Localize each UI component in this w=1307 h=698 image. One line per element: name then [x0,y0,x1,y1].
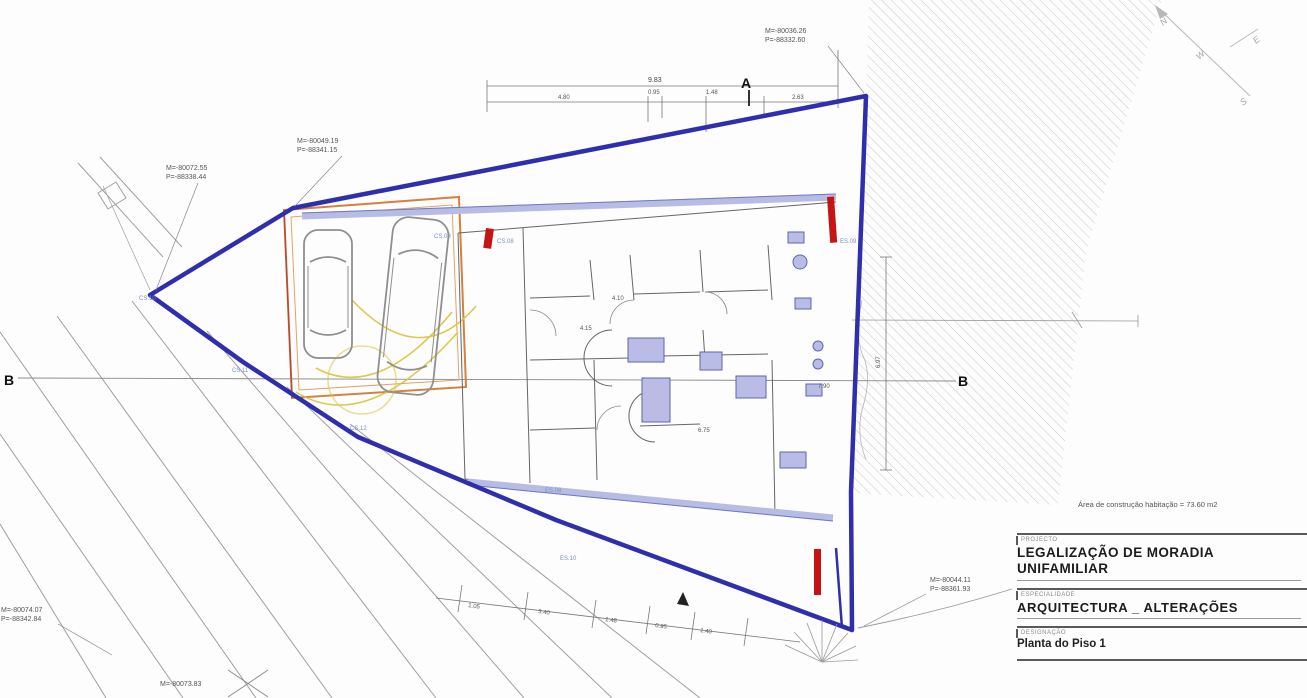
compass-w: W [1194,47,1208,61]
dimension-chain-top [487,50,838,132]
level-label: CS.12 [350,426,367,432]
level-label: CS.10 [139,296,156,302]
title-underline [1017,580,1301,581]
title-block-caption-drawing: DESIGNAÇÃO [1021,630,1307,636]
coord-bottom-center-m: M=-80073.83 [160,681,202,688]
title-block-divider [1017,626,1307,628]
hatched-area [851,0,1162,505]
compass-s: S [1238,96,1249,108]
coord-bottom-left-p: P=-88342.84 [1,616,41,623]
dim-seg-4: 2.63 [792,95,804,101]
room-dim-label: 4.15 [580,326,592,332]
coord-top-right-p: P=-88332.60 [765,37,805,44]
title-block-divider [1017,533,1307,535]
car-1 [304,230,352,358]
title-underline [1017,618,1301,619]
level-label: ES.09 [840,239,857,245]
plan-canvas: N E S W 9.83 4.80 0.95 1.48 2.63 6.97 [0,0,1307,698]
room-dim-label: 4.10 [612,296,624,302]
dim-b3: 1.48 [605,617,618,625]
coord-left-m: M=-80072.55 [166,165,208,172]
dim-overall: 9.83 [648,77,662,84]
dim-seg-3: 1.48 [706,90,718,96]
room-dim-label: 7.90 [818,384,830,390]
coord-bottom-right-p: P=-88361.93 [930,586,970,593]
dim-right: 6.97 [876,356,882,368]
compass-e: E [1251,33,1263,45]
room-dim-label: 6.75 [698,428,710,434]
site-boundary [150,96,866,630]
coord-top-right-m: M=-80036.26 [765,28,807,35]
coord-left-p: P=-88338.44 [166,174,206,181]
car-2 [376,216,450,397]
title-block-caption-speciality: ESPECIALIDADE [1021,592,1307,598]
dimension-chain-bottom [436,585,800,646]
level-label: CS.08 [497,239,514,245]
dim-seg-1: 4.80 [558,95,570,101]
garage-outline [284,197,466,398]
survey-cross-icon [228,670,268,697]
dim-seg-2: 0.95 [648,90,660,96]
coord-leaders [58,46,926,655]
section-marker-b-left: B [4,372,14,388]
dim-b5: 1.40 [700,628,713,636]
project-title: LEGALIZAÇÃO DE MORADIA UNIFAMILIAR [1017,545,1307,577]
dim-b2: 3.40 [538,609,551,617]
level-label: ES.08 [545,488,562,494]
level-label: CS.11 [232,368,249,374]
speciality-title: ARQUITECTURA _ ALTERAÇÕES [1017,600,1307,615]
title-block-caption-project: PROJECTO [1021,537,1307,543]
dim-b4: 0.95 [655,623,668,631]
spacer [1017,650,1307,659]
coord-top-mid-m: M=-80049.19 [297,138,339,145]
coord-top-mid-p: P=-88341.15 [297,147,337,154]
title-block-divider [1017,659,1307,661]
coord-bottom-left-m: M=-80074.07 [1,607,43,614]
section-marker-b-right: B [958,373,968,389]
wall-bands [302,194,836,521]
boundary-inner-segment [836,548,842,628]
title-block: PROJECTO LEGALIZAÇÃO DE MORADIA UNIFAMIL… [1017,533,1307,698]
fixtures [628,232,823,468]
dim-b1: 1.05 [468,603,481,611]
level-label: CS.09 [434,234,451,240]
title-block-divider [1017,588,1307,590]
section-a-bottom-arrow-icon [677,592,689,606]
level-label: ES.10 [560,556,577,562]
drawing-name: Planta do Piso 1 [1017,638,1307,650]
compass-rose: N E S W [1155,5,1263,108]
coord-bottom-right-m: M=-80044.11 [930,577,971,584]
section-marker-a: A [741,75,751,91]
curb-curve [858,589,1012,628]
area-note: Área de construção habitação = 73.60 m2 [1078,500,1217,509]
